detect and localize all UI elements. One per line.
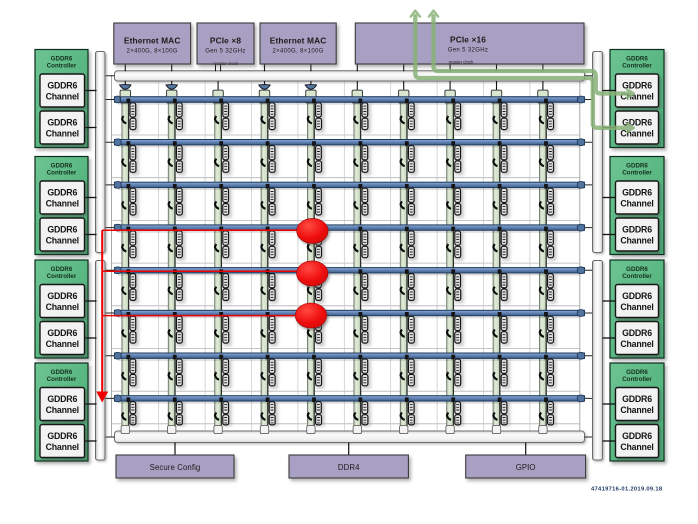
svg-text:Ethernet MAC: Ethernet MAC (124, 36, 181, 46)
svg-text:Controller: Controller (47, 63, 77, 70)
svg-text:master clock: master clock (213, 61, 238, 66)
svg-text:PCIe ×8: PCIe ×8 (210, 36, 241, 46)
svg-text:Controller: Controller (622, 273, 652, 280)
svg-text:PCIe ×16: PCIe ×16 (450, 35, 486, 45)
svg-text:GPIO: GPIO (516, 463, 536, 472)
svg-text:Channel: Channel (46, 128, 79, 138)
svg-text:GDDR6: GDDR6 (622, 187, 652, 197)
svg-text:Gen 5 32GHz: Gen 5 32GHz (448, 48, 489, 54)
svg-text:Channel: Channel (620, 198, 653, 208)
svg-text:2×400G, 8×100G: 2×400G, 8×100G (127, 49, 178, 55)
svg-text:Channel: Channel (46, 198, 79, 208)
svg-text:Controller: Controller (622, 63, 652, 70)
svg-text:Controller: Controller (622, 376, 652, 383)
svg-text:DDR4: DDR4 (338, 463, 360, 472)
svg-text:GDDR6: GDDR6 (47, 187, 77, 197)
svg-text:Controller: Controller (47, 376, 77, 383)
svg-text:Secure Config: Secure Config (150, 463, 201, 472)
svg-text:Channel: Channel (620, 339, 653, 349)
svg-text:Channel: Channel (620, 235, 653, 245)
svg-text:Channel: Channel (46, 405, 79, 415)
svg-text:Channel: Channel (620, 302, 653, 312)
svg-text:GDDR6: GDDR6 (47, 394, 77, 404)
svg-text:Channel: Channel (46, 91, 79, 101)
svg-text:GDDR6: GDDR6 (47, 291, 77, 301)
svg-text:GDDR6: GDDR6 (47, 224, 77, 234)
svg-text:Controller: Controller (622, 170, 652, 177)
svg-text:47419716-01.2019.09.18: 47419716-01.2019.09.18 (591, 487, 663, 493)
svg-text:Channel: Channel (46, 302, 79, 312)
svg-text:GDDR6: GDDR6 (47, 431, 77, 441)
svg-text:2×400G, 8×100G: 2×400G, 8×100G (272, 49, 323, 55)
svg-text:GDDR6: GDDR6 (626, 163, 648, 170)
svg-text:GDDR6: GDDR6 (622, 291, 652, 301)
svg-text:GDDR6: GDDR6 (622, 224, 652, 234)
svg-text:Channel: Channel (46, 235, 79, 245)
svg-text:Ethernet MAC: Ethernet MAC (270, 36, 327, 46)
svg-text:Controller: Controller (47, 170, 77, 177)
svg-text:GDDR6: GDDR6 (622, 394, 652, 404)
svg-text:GDDR6: GDDR6 (47, 328, 77, 338)
svg-text:GDDR6: GDDR6 (51, 56, 73, 63)
svg-text:Channel: Channel (620, 405, 653, 415)
svg-text:GDDR6: GDDR6 (51, 266, 73, 273)
svg-text:GDDR6: GDDR6 (622, 328, 652, 338)
svg-text:Controller: Controller (47, 273, 77, 280)
svg-text:Channel: Channel (46, 339, 79, 349)
svg-text:GDDR6: GDDR6 (51, 369, 73, 376)
svg-text:Channel: Channel (620, 442, 653, 452)
svg-text:GDDR6: GDDR6 (622, 431, 652, 441)
svg-text:Gen 5 32GHz: Gen 5 32GHz (205, 49, 246, 55)
svg-text:master clock: master clock (449, 60, 474, 65)
svg-text:GDDR6: GDDR6 (47, 80, 77, 90)
svg-text:GDDR6: GDDR6 (626, 266, 648, 273)
svg-text:GDDR6: GDDR6 (51, 163, 73, 170)
svg-text:GDDR6: GDDR6 (47, 117, 77, 127)
svg-text:Channel: Channel (46, 442, 79, 452)
svg-text:GDDR6: GDDR6 (626, 56, 648, 63)
svg-text:GDDR6: GDDR6 (626, 369, 648, 376)
